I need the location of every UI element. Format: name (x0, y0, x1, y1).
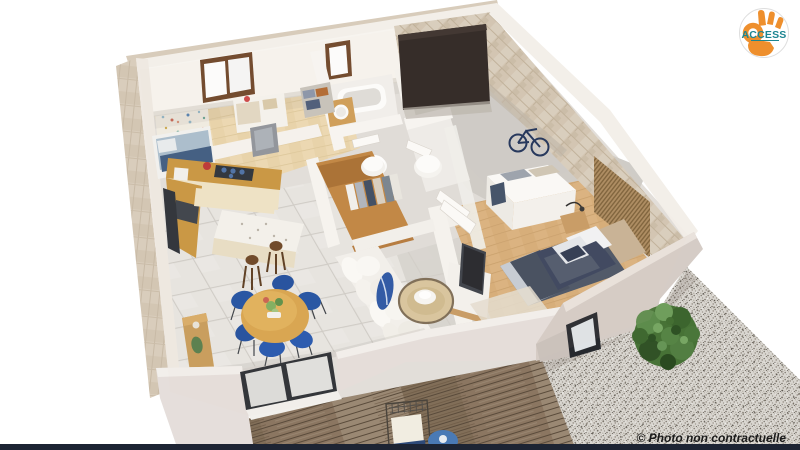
svg-text:ACCESS: ACCESS (742, 29, 787, 41)
svg-text:© Photo non contractuelle: © Photo non contractuelle (636, 431, 786, 445)
